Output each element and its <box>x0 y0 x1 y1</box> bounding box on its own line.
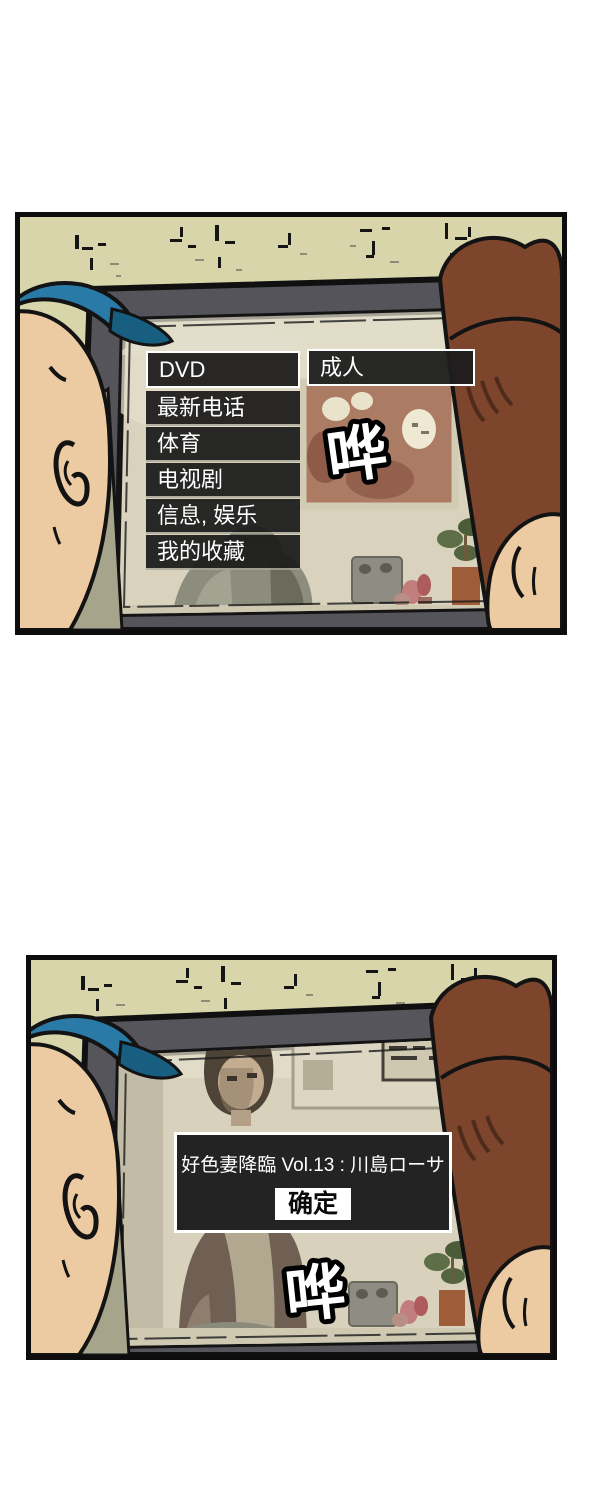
comic-panel-2: 好色妻降臨 Vol.13 : 川島ローサ 确定 哗 <box>26 955 557 1360</box>
sfx-text: 哗 <box>292 373 422 493</box>
menu-item-latest-calls: 最新电话 <box>146 391 300 424</box>
dialog-title: 好色妻降臨 Vol.13 : 川島ローサ <box>177 1150 449 1177</box>
sfx-text: 哗 <box>251 1212 381 1332</box>
menu-item-tv-drama: 电视剧 <box>146 463 300 496</box>
comic-panel-1: DVD 最新电话 体育 电视剧 信息, 娱乐 我的收藏 成人 哗 <box>15 212 567 635</box>
svg-text:哗: 哗 <box>323 417 392 492</box>
svg-text:哗: 哗 <box>282 1257 349 1330</box>
menu-item-favorites: 我的收藏 <box>146 535 300 568</box>
menu-item-info-entertainment: 信息, 娱乐 <box>146 499 300 532</box>
radio-icon <box>352 557 402 603</box>
menu-item-dvd: DVD <box>146 351 300 388</box>
tv-menu: DVD 最新电话 体育 电视剧 信息, 娱乐 我的收藏 <box>146 351 300 571</box>
menu-item-sports: 体育 <box>146 427 300 460</box>
